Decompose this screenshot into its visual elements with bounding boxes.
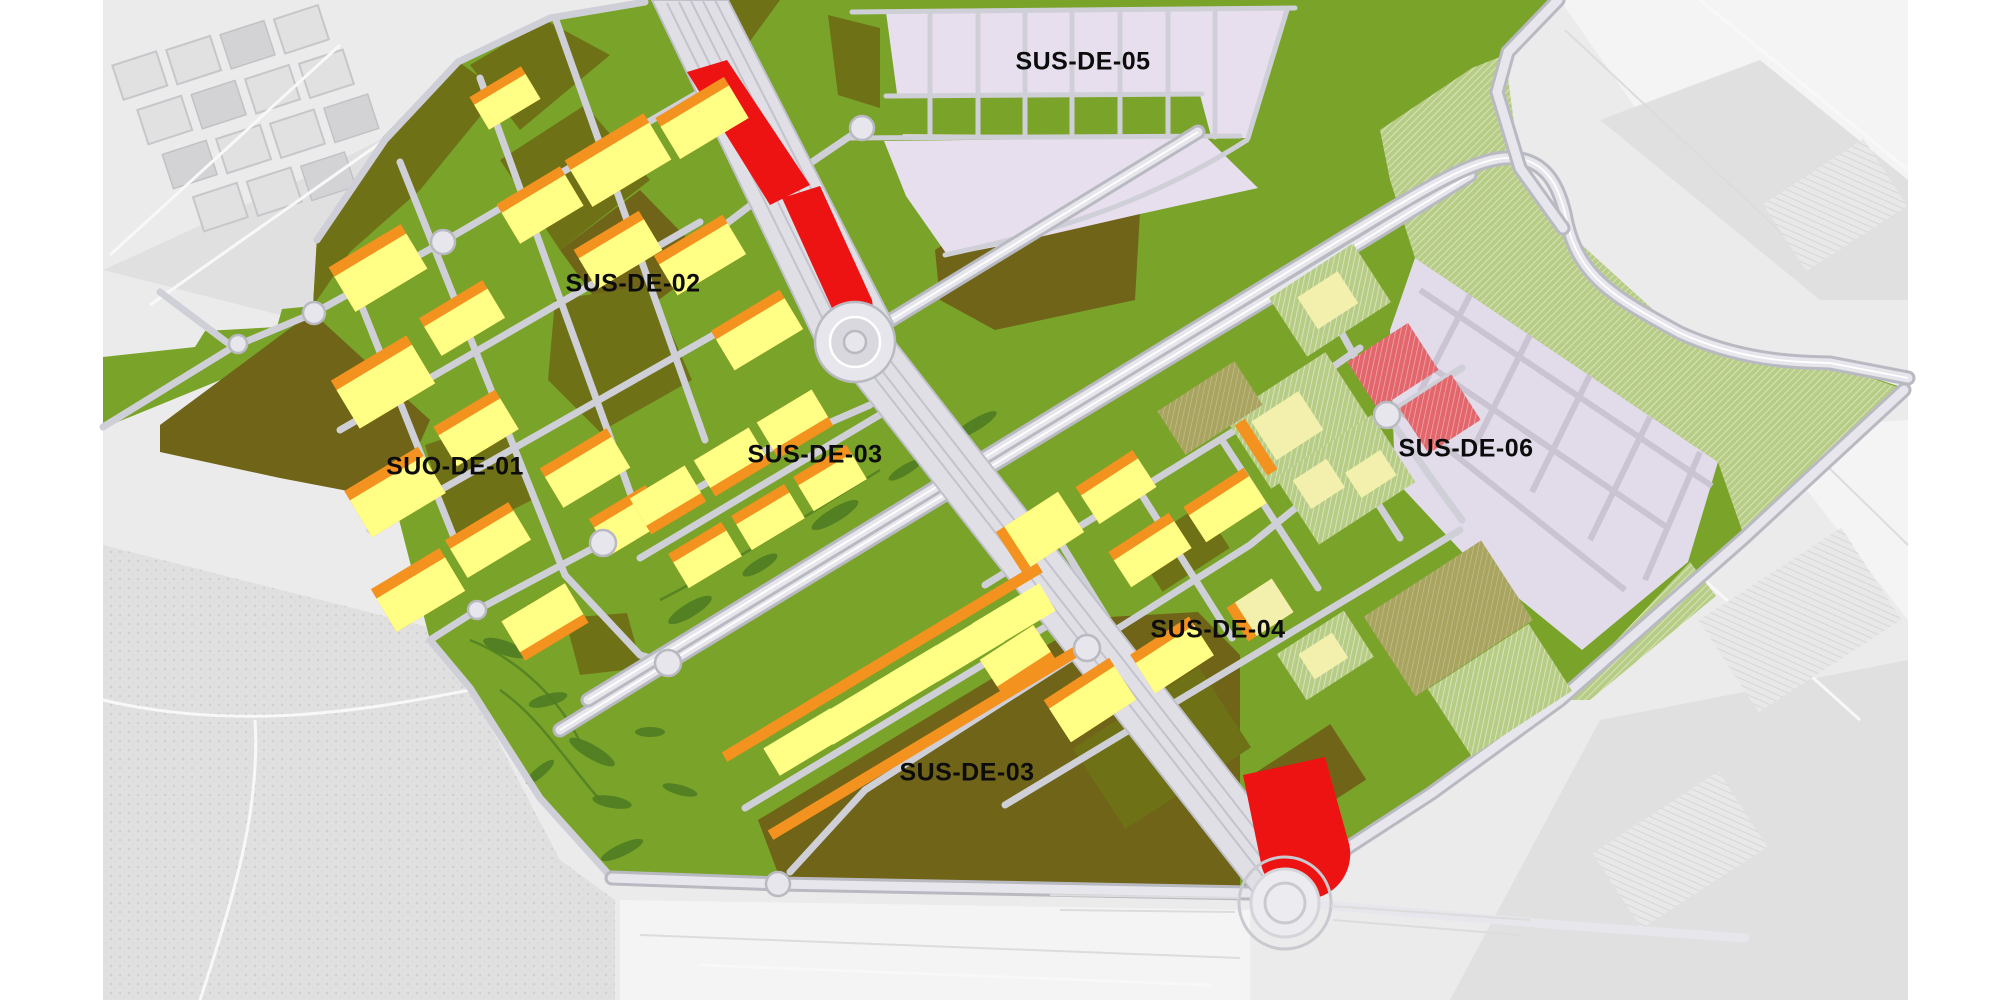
zone-label-sus-de-03-south: SUS-DE-03 xyxy=(899,759,1034,788)
zoning-plan-graphic xyxy=(0,0,2000,1000)
zone-label-sus-de-04: SUS-DE-04 xyxy=(1150,616,1285,645)
zone-label-sus-de-05: SUS-DE-05 xyxy=(1015,48,1150,77)
zone-label-sus-de-03-central: SUS-DE-03 xyxy=(747,441,882,470)
roundabout-major xyxy=(815,302,895,382)
map-canvas: SUS-DE-05 SUS-DE-02 SUO-DE-01 SUS-DE-03 … xyxy=(0,0,2000,1000)
zone-label-sus-de-06: SUS-DE-06 xyxy=(1398,435,1533,464)
zone-label-sus-de-02: SUS-DE-02 xyxy=(565,270,700,299)
zone-label-suo-de-01: SUO-DE-01 xyxy=(386,453,524,482)
